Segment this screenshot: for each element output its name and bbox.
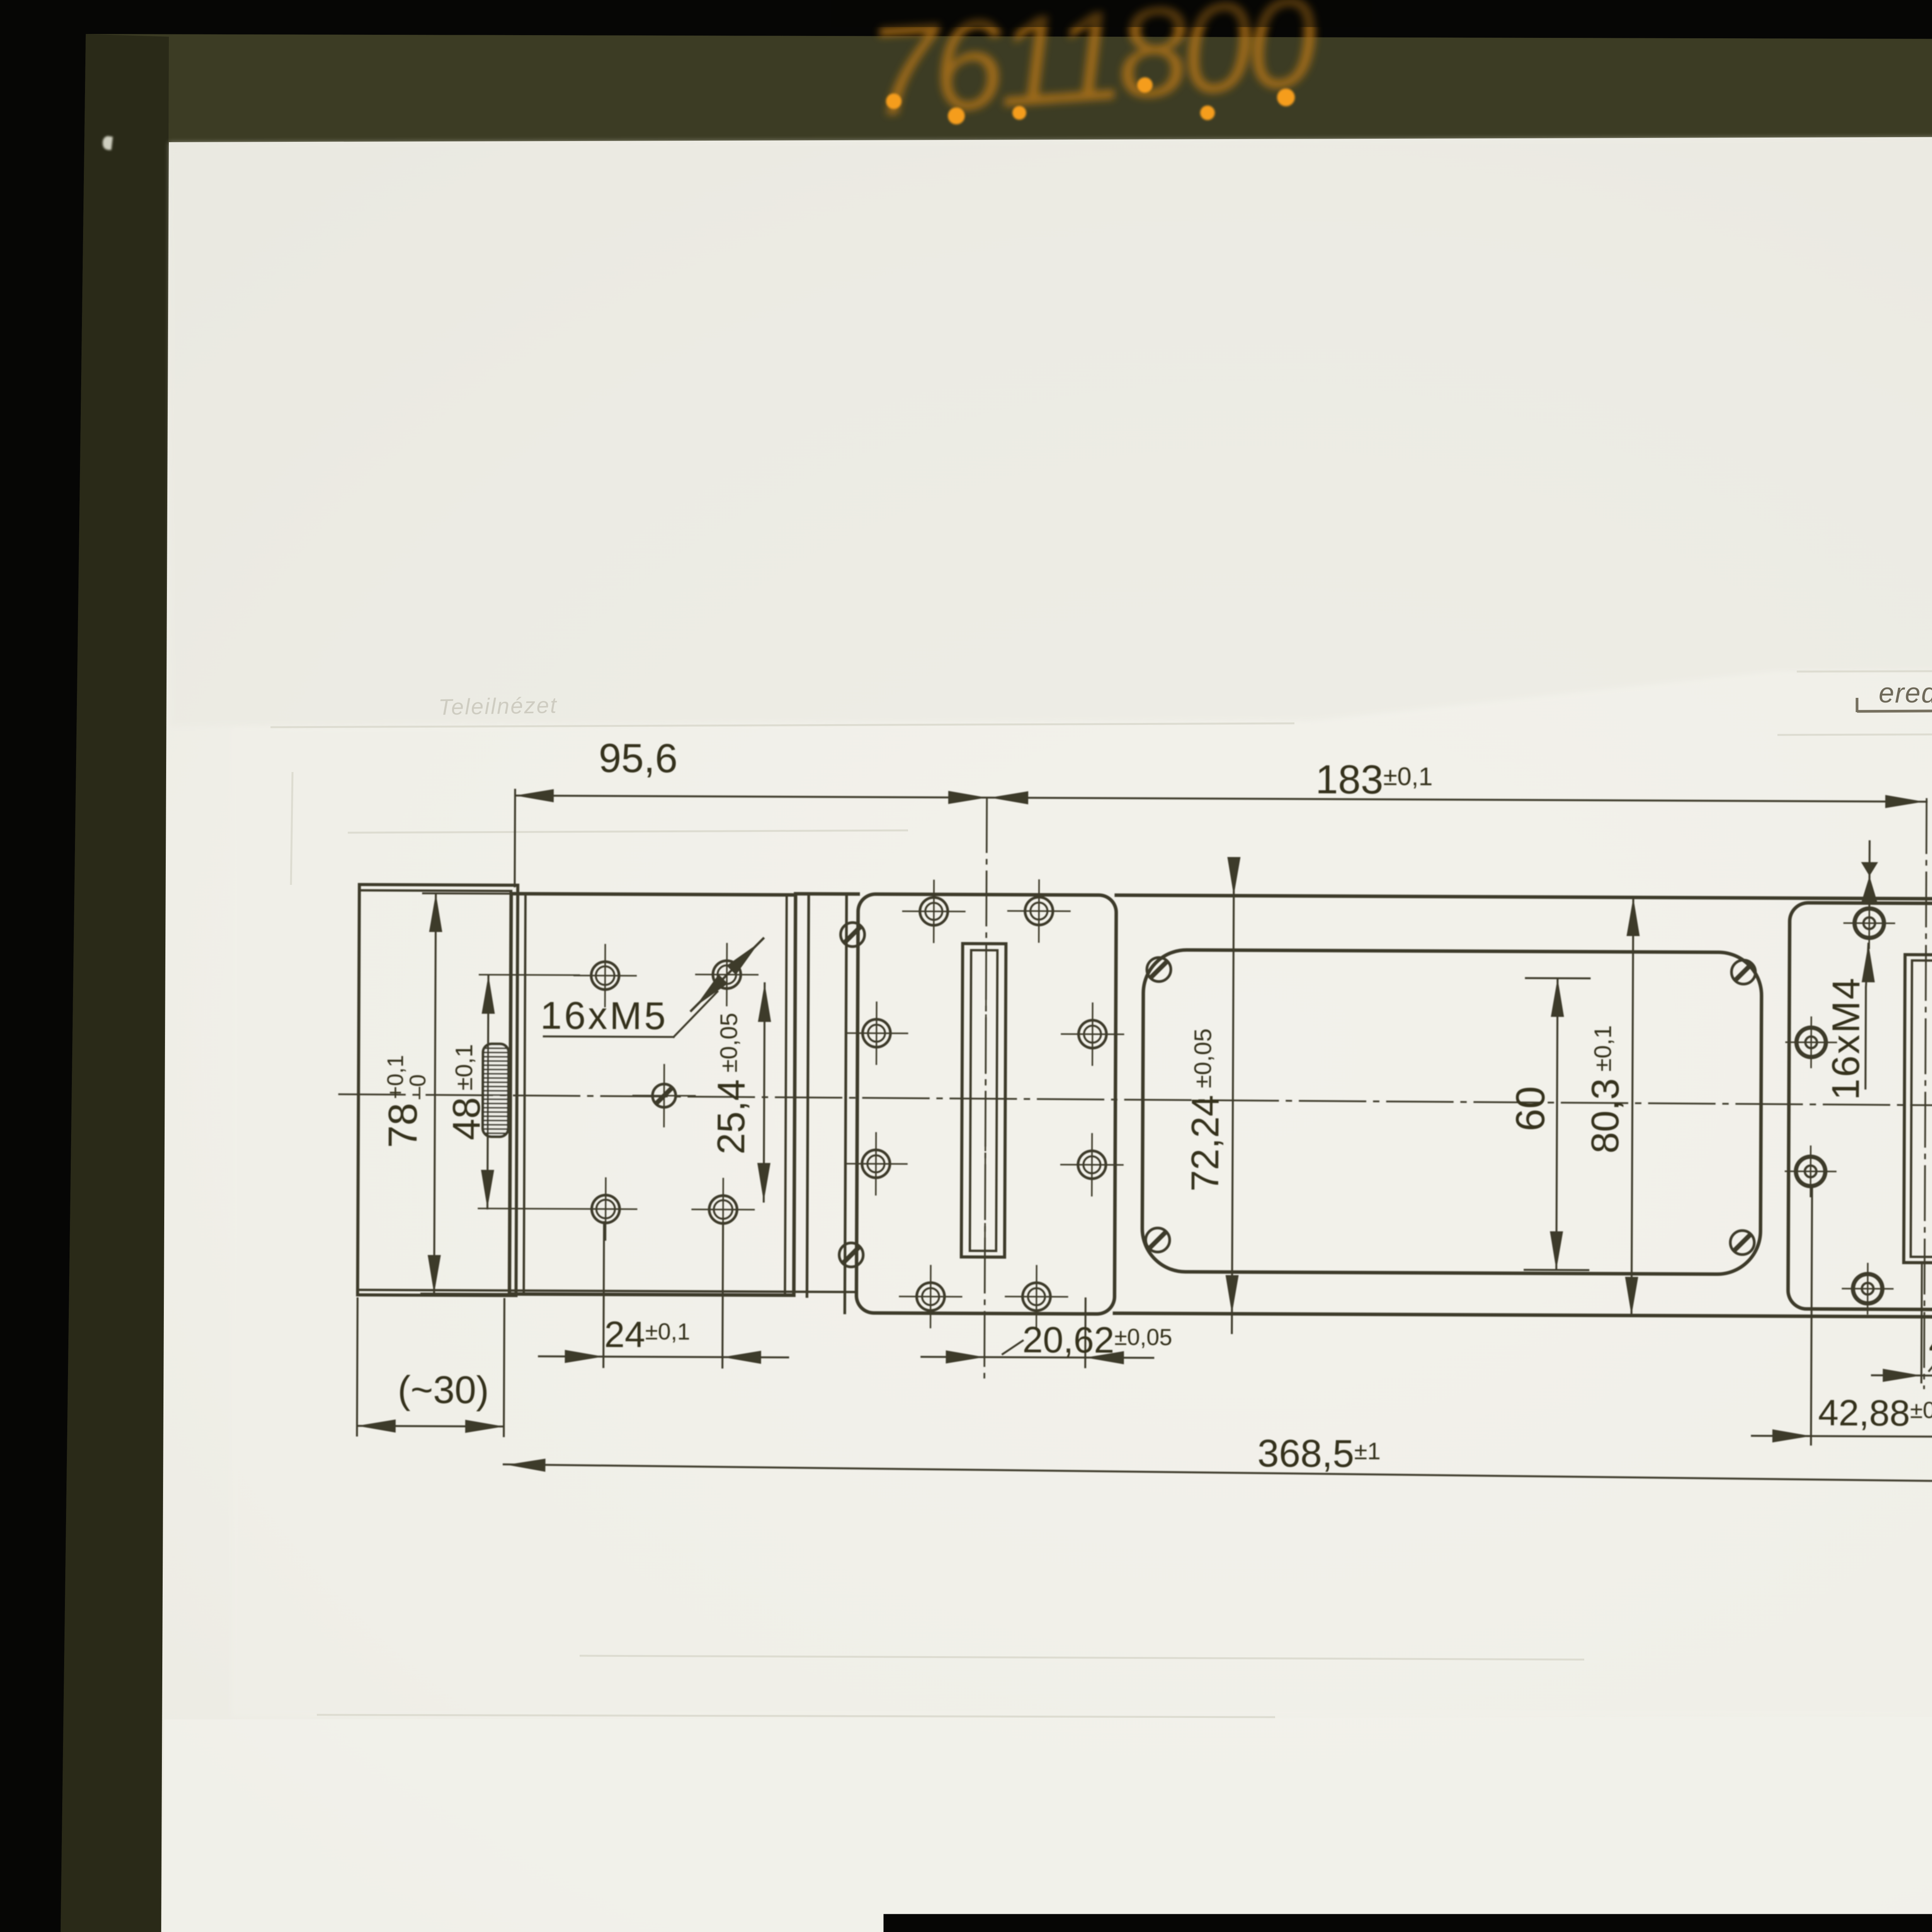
svg-text:eredetir.: eredetir. <box>1879 678 1932 709</box>
svg-text:+0,1: +0,1 <box>383 1055 408 1099</box>
svg-text:(~30): (~30) <box>398 1368 489 1412</box>
svg-text:4±0,05: 4±0,05 <box>1929 1323 1932 1365</box>
svg-text:78: 78 <box>380 1103 426 1148</box>
svg-text:Teleilnézet: Teleilnézet <box>438 693 558 720</box>
svg-text:60: 60 <box>1508 1086 1553 1131</box>
svg-text:–0: –0 <box>405 1074 430 1099</box>
svg-text:95,6: 95,6 <box>599 736 678 781</box>
svg-text:16xM5: 16xM5 <box>540 994 668 1037</box>
svg-text:16xM4: 16xM4 <box>1824 976 1868 1100</box>
